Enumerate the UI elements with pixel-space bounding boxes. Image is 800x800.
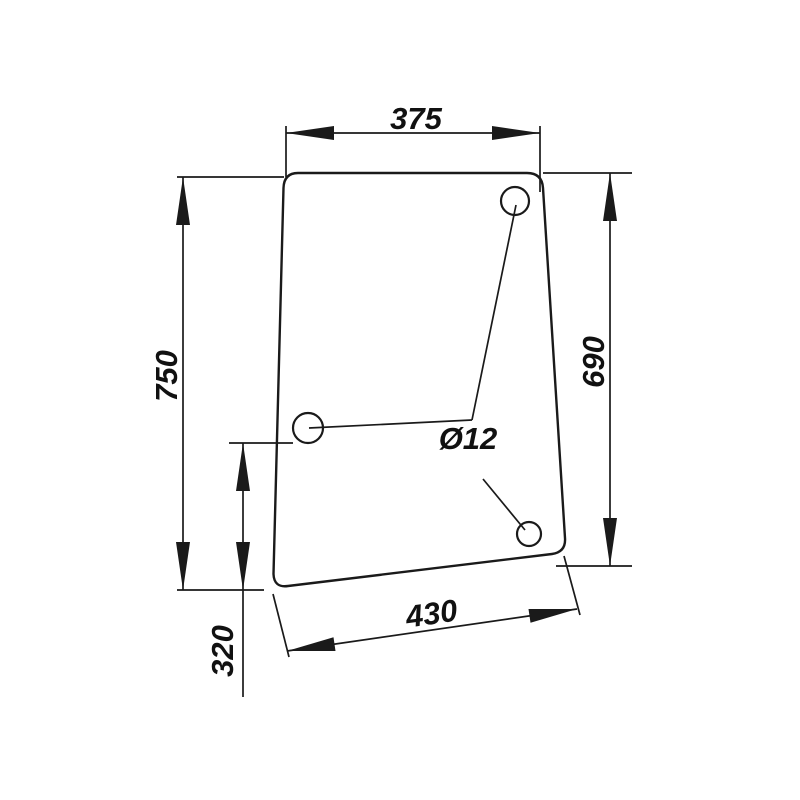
arrowhead-bottom: [176, 542, 190, 590]
dimension-hole-offset: 320: [205, 443, 293, 697]
dimension-left-height: 750: [149, 177, 284, 590]
dimension-top-width: 375: [286, 101, 540, 192]
extension-line: [273, 594, 289, 657]
left-height-label: 750: [149, 350, 184, 402]
arrowhead-top: [176, 177, 190, 225]
arrowhead-right: [529, 609, 578, 623]
hole-diameter-label: Ø12: [439, 421, 498, 456]
arrowhead-bottom: [236, 542, 250, 590]
right-height-label: 690: [576, 336, 611, 388]
arrowhead-left: [287, 637, 336, 651]
arrowhead-right: [492, 126, 540, 140]
extension-line: [564, 556, 580, 615]
technical-drawing: 375 750 690 320 430: [0, 0, 800, 800]
hole-diameter-callout: Ø12: [309, 205, 525, 530]
arrowhead-top: [236, 443, 250, 491]
arrowhead-left: [286, 126, 334, 140]
hole-offset-label: 320: [205, 625, 240, 677]
leader-to-bottom-hole: [483, 479, 525, 530]
arrowhead-bottom: [603, 518, 617, 566]
arrowhead-top: [603, 173, 617, 221]
bottom-width-label: 430: [402, 593, 459, 635]
dimension-right-height: 690: [543, 173, 632, 566]
top-width-label: 375: [390, 101, 442, 136]
dimension-bottom-width: 430: [273, 556, 580, 657]
leader-to-top-hole: [472, 205, 516, 420]
